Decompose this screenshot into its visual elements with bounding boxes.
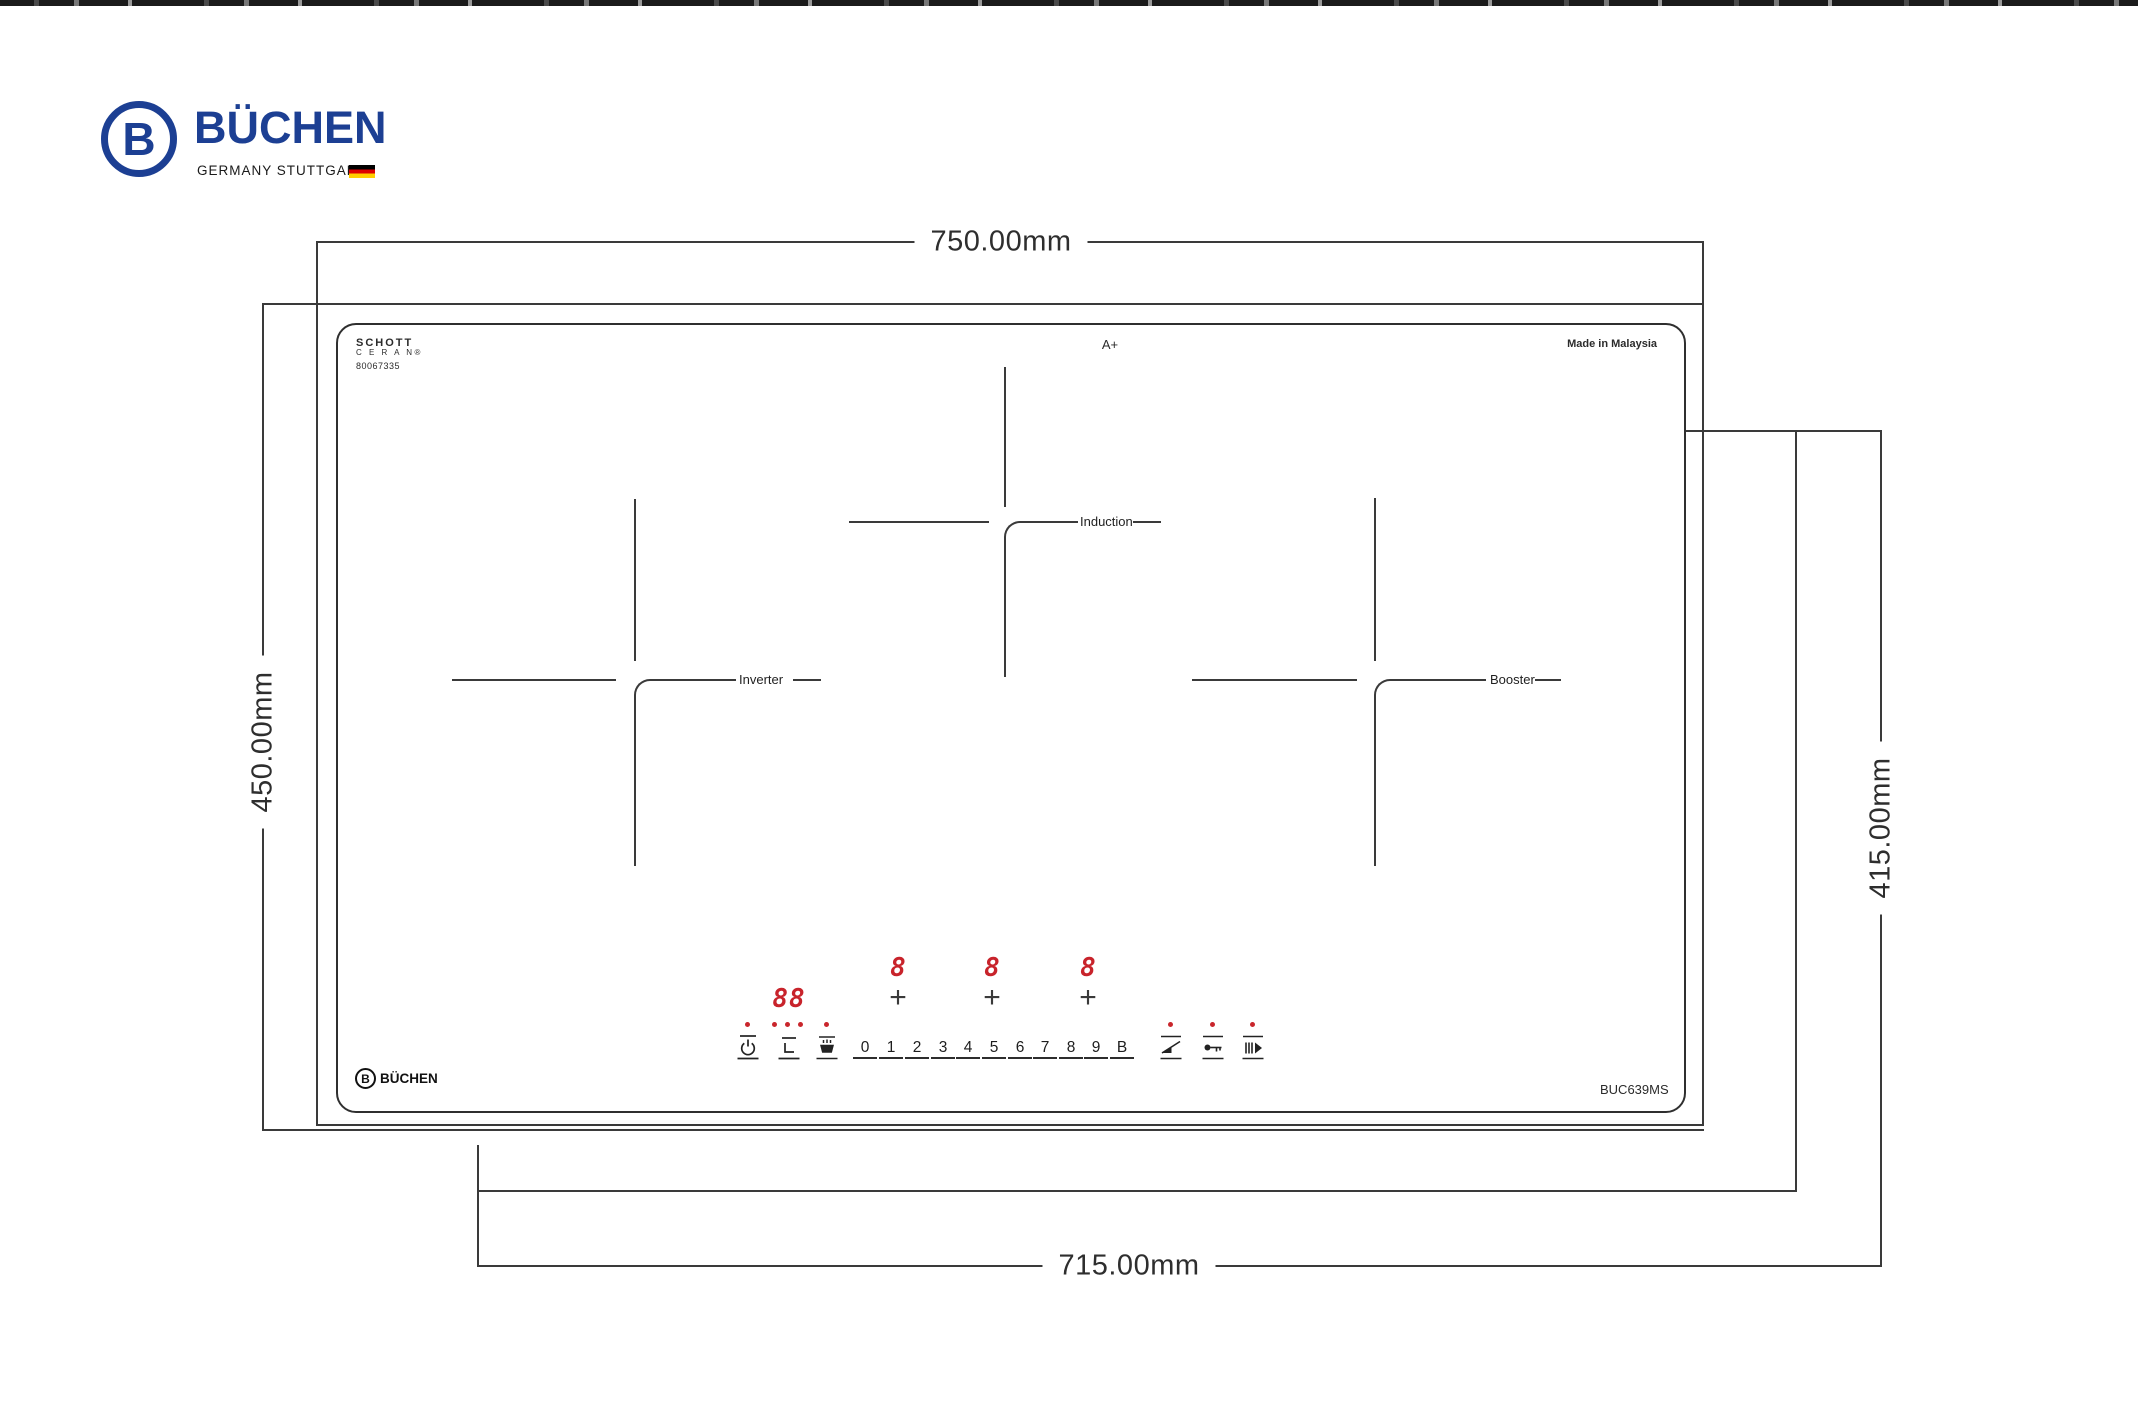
child-lock-key-icon xyxy=(1200,1034,1226,1060)
glass-depth-dim-label: 450.00mm xyxy=(247,655,280,828)
keep-warm-icon xyxy=(814,1034,840,1060)
germany-flag-icon xyxy=(349,165,375,178)
indicator-dot xyxy=(1210,1022,1215,1027)
cutout-depth-dim-label: 415.00mm xyxy=(1865,741,1898,914)
zone-label-induction: Induction xyxy=(1080,514,1133,529)
timer-key xyxy=(776,1034,802,1060)
crosshair-line xyxy=(452,679,616,681)
indicator-dot xyxy=(798,1022,803,1027)
glass-brand-name: BÜCHEN xyxy=(380,1071,438,1086)
indicator-dot xyxy=(1168,1022,1173,1027)
cutout-left-extension-line xyxy=(477,1145,479,1267)
level-key-5: 5 xyxy=(982,1038,1006,1059)
zone-display-1: 8 xyxy=(886,955,910,981)
brand-monogram-icon: B xyxy=(101,101,177,177)
level-key-8: 8 xyxy=(1059,1038,1083,1059)
energy-rating-label: A+ xyxy=(1095,337,1125,352)
indicator-dot xyxy=(1250,1022,1255,1027)
flex-zone-key xyxy=(1158,1034,1184,1060)
pause-key xyxy=(1240,1034,1266,1060)
cutout-width-dim-label: 715.00mm xyxy=(1042,1250,1215,1283)
cooktop-glass-outline: SCHOTT C E R A N® 80067335 A+ Made in Ma… xyxy=(336,323,1686,1113)
crosshair-leader xyxy=(1374,679,1486,866)
brand-name: BÜCHEN xyxy=(194,102,387,154)
zone-cross-mark: + xyxy=(976,982,1008,1014)
model-label: BUC639MS xyxy=(1600,1082,1669,1097)
maker-serial: 80067335 xyxy=(356,362,423,372)
zone-display-3: 8 xyxy=(1076,955,1100,981)
level-key-boost: B xyxy=(1110,1038,1134,1059)
indicator-dot xyxy=(745,1022,750,1027)
cutout-top-line xyxy=(1682,430,1882,432)
zone-label-booster: Booster xyxy=(1490,672,1535,687)
child-lock-key xyxy=(1200,1034,1226,1060)
level-key-0: 0 xyxy=(853,1038,877,1059)
leader-dash xyxy=(1535,679,1561,681)
cutout-right-line xyxy=(1795,430,1797,1190)
crosshair-leader xyxy=(634,679,736,866)
level-key-3: 3 xyxy=(931,1038,955,1059)
glass-width-dim-label: 750.00mm xyxy=(914,226,1087,259)
level-key-2: 2 xyxy=(905,1038,929,1059)
pause-play-icon xyxy=(1240,1034,1266,1060)
brand-monogram-letter: B xyxy=(122,116,155,162)
flex-zone-icon xyxy=(1158,1034,1184,1060)
origin-label: Made in Malaysia xyxy=(1567,338,1657,350)
timer-icon xyxy=(776,1034,802,1060)
indicator-dot xyxy=(785,1022,790,1027)
keep-warm-key xyxy=(814,1034,840,1060)
zone-display-2: 8 xyxy=(980,955,1004,981)
crosshair-leader xyxy=(1004,521,1078,677)
maker-line2: C E R A N® xyxy=(356,349,423,358)
glass-brand-monogram-icon: B xyxy=(355,1068,376,1089)
level-key-7: 7 xyxy=(1033,1038,1057,1059)
timer-display: 88 xyxy=(767,986,811,1012)
top-strip xyxy=(0,0,2138,6)
crosshair-line xyxy=(1374,498,1376,661)
crosshair-line xyxy=(634,499,636,661)
leader-dash xyxy=(793,679,821,681)
crosshair-line xyxy=(1192,679,1357,681)
crosshair-line xyxy=(849,521,989,523)
zone-cross-mark: + xyxy=(882,982,914,1014)
power-key xyxy=(735,1034,761,1060)
level-key-4: 4 xyxy=(956,1038,980,1059)
indicator-dot xyxy=(824,1022,829,1027)
brand-tagline: GERMANY STUTTGART xyxy=(197,163,367,178)
glass-maker-mark: SCHOTT C E R A N® 80067335 xyxy=(356,337,423,372)
zone-cross-mark: + xyxy=(1072,982,1104,1014)
cutout-bottom-line xyxy=(477,1190,1797,1192)
zone-label-inverter: Inverter xyxy=(739,672,783,687)
level-key-6: 6 xyxy=(1008,1038,1032,1059)
power-icon xyxy=(735,1034,761,1060)
leader-dash xyxy=(1133,521,1161,523)
glass-brand-logo: B BÜCHEN xyxy=(355,1068,438,1089)
level-key-9: 9 xyxy=(1084,1038,1108,1059)
level-key-1: 1 xyxy=(879,1038,903,1059)
crosshair-line xyxy=(1004,367,1006,507)
indicator-dot xyxy=(772,1022,777,1027)
spec-sheet: B BÜCHEN GERMANY STUTTGART SCHOTT C E R … xyxy=(0,0,2138,1425)
